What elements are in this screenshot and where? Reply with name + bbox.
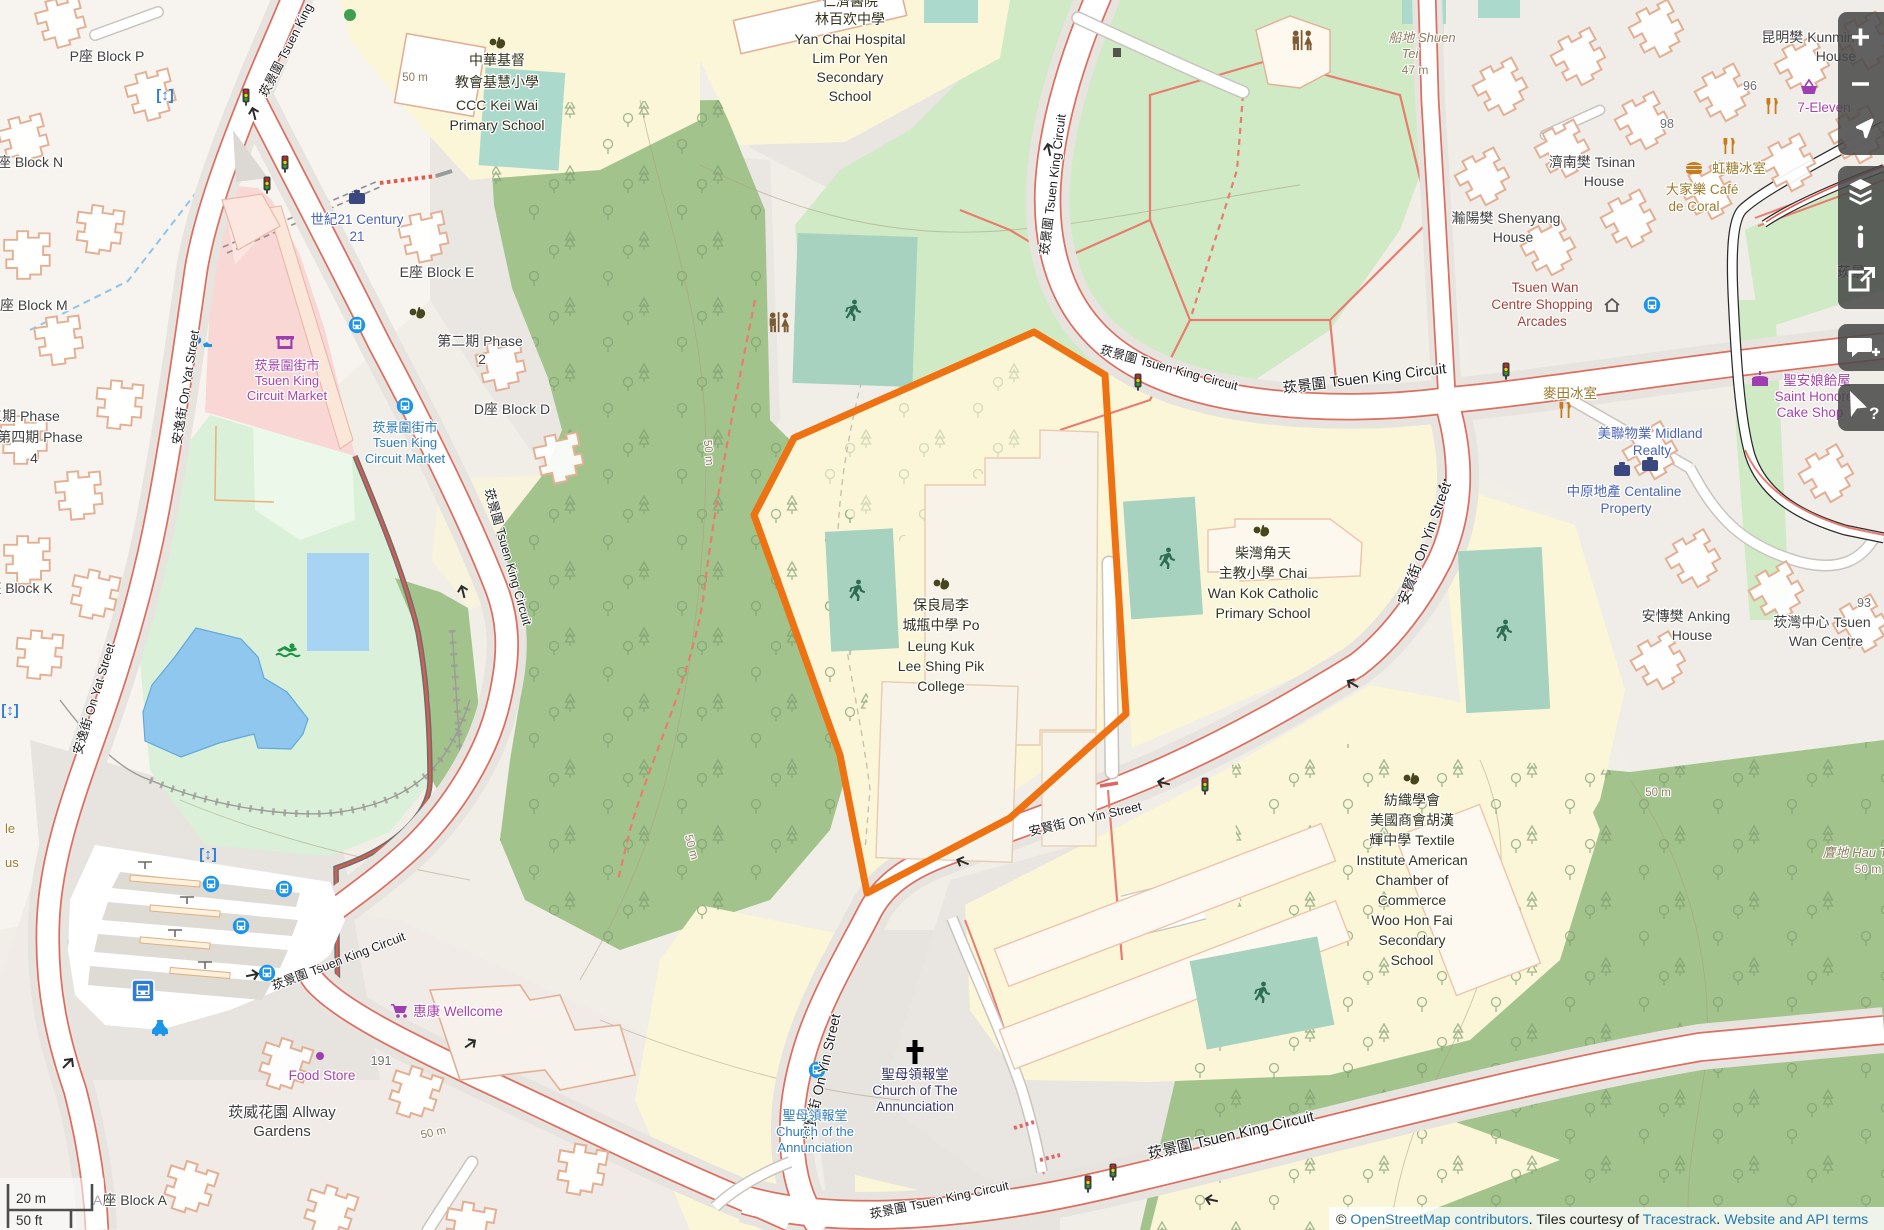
svg-text:美聯物業 Midland: 美聯物業 Midland (1597, 426, 1702, 441)
svg-text:城甁中學 Po: 城甁中學 Po (902, 617, 979, 633)
svg-text:Arcades: Arcades (1517, 314, 1567, 329)
svg-text:輝中學 Textile: 輝中學 Textile (1369, 832, 1455, 848)
svg-text:21: 21 (349, 229, 364, 244)
svg-text:2: 2 (478, 351, 486, 367)
svg-text:50 m: 50 m (402, 72, 428, 84)
svg-text:美國商會胡漢: 美國商會胡漢 (1370, 812, 1454, 828)
svg-text:濟南樊 Tsinan: 濟南樊 Tsinan (1549, 154, 1635, 170)
svg-text:聖母領報堂: 聖母領報堂 (782, 1108, 847, 1123)
svg-text:Primary School: Primary School (1216, 605, 1311, 621)
svg-text:20 m: 20 m (16, 1191, 46, 1206)
svg-text:Tei: Tei (1402, 46, 1420, 61)
svg-text:主教小學 Chai: 主教小學 Chai (1219, 565, 1308, 581)
svg-text:Leung Kuk: Leung Kuk (908, 638, 976, 654)
svg-text:Woo Hon Fai: Woo Hon Fai (1371, 912, 1452, 928)
svg-text:School: School (829, 88, 872, 104)
svg-text:M座 Block M: M座 Block M (0, 297, 68, 313)
svg-text:聖母領報堂: 聖母領報堂 (881, 1066, 949, 1082)
svg-text:Tsuen Wan: Tsuen Wan (1511, 280, 1578, 295)
svg-text:柴灣角天: 柴灣角天 (1235, 545, 1291, 561)
svg-text:Lim Por Yen: Lim Por Yen (812, 50, 888, 66)
svg-text:三期 Phase: 三期 Phase (0, 408, 60, 424)
svg-text:世紀21 Century: 世紀21 Century (310, 212, 403, 227)
svg-text:98: 98 (1660, 117, 1674, 131)
svg-text:船地 Shuen: 船地 Shuen (1388, 30, 1455, 45)
svg-text:Gardens: Gardens (253, 1123, 311, 1140)
svg-text:Lee Shing Pik: Lee Shing Pik (898, 658, 985, 674)
svg-text:96: 96 (1743, 79, 1757, 93)
svg-text:House: House (1493, 229, 1534, 245)
svg-text:Annunciation: Annunciation (876, 1099, 954, 1114)
svg-text:第二期 Phase: 第二期 Phase (437, 333, 523, 349)
svg-text:Cake Shop: Cake Shop (1777, 405, 1844, 420)
svg-text:保良局李: 保良局李 (913, 597, 969, 613)
svg-text:大家樂 Café: 大家樂 Café (1666, 181, 1739, 197)
svg-text:Secondary: Secondary (817, 69, 884, 85)
svg-text:紡織學會: 紡織學會 (1384, 792, 1440, 808)
svg-text:Realty: Realty (1633, 443, 1672, 458)
svg-text:Commerce: Commerce (1378, 892, 1447, 908)
svg-text:座 Block K: 座 Block K (0, 580, 53, 596)
svg-text:聖安娘餄屋: 聖安娘餄屋 (1783, 373, 1851, 388)
svg-text:le: le (5, 821, 15, 836)
svg-text:191: 191 (371, 1054, 392, 1068)
svg-text:50 m: 50 m (1645, 787, 1671, 799)
svg-text:莰景圍街市: 莰景圍街市 (372, 420, 437, 435)
svg-text:House: House (1672, 627, 1713, 643)
svg-text:Yan Chai Hospital: Yan Chai Hospital (794, 31, 905, 47)
svg-text:中華基督: 中華基督 (469, 52, 525, 68)
svg-text:50 m: 50 m (701, 439, 715, 466)
svg-text:Circuit Market: Circuit Market (365, 451, 446, 466)
svg-text:莰威花園 Allway: 莰威花園 Allway (228, 1104, 336, 1121)
svg-text:D座 Block D: D座 Block D (474, 401, 550, 417)
svg-text:林百欢中學: 林百欢中學 (815, 11, 885, 27)
svg-text:50 ft: 50 ft (16, 1213, 43, 1228)
svg-text:Tsuen King: Tsuen King (373, 435, 437, 450)
svg-text:© OpenStreetMap contributors.: © OpenStreetMap contributors. Tiles cour… (1336, 1212, 1868, 1228)
svg-text:教會基慧小學: 教會基慧小學 (455, 74, 539, 90)
svg-text:麥田冰室: 麥田冰室 (1543, 385, 1597, 401)
svg-text:College: College (917, 678, 965, 694)
svg-text:惠康 Wellcome: 惠康 Wellcome (413, 1003, 503, 1019)
svg-text:莰灣中心 Tsuen: 莰灣中心 Tsuen (1773, 614, 1870, 630)
svg-text:House: House (1584, 173, 1625, 189)
svg-text:Church of The: Church of The (872, 1083, 957, 1098)
svg-text:4: 4 (30, 450, 38, 466)
svg-text:47 m: 47 m (1402, 63, 1429, 77)
svg-text:50 m: 50 m (1855, 862, 1882, 876)
svg-text:?: ? (1869, 404, 1879, 423)
svg-text:Food Store: Food Store (289, 1068, 356, 1083)
svg-text:E座 Block E: E座 Block E (400, 264, 475, 280)
svg-text:de Coral: de Coral (1668, 199, 1719, 214)
svg-text:仁濟醫院: 仁濟醫院 (822, 0, 878, 9)
svg-text:Circuit Market: Circuit Market (247, 388, 328, 403)
svg-text:Church of the: Church of the (776, 1124, 854, 1139)
svg-text:School: School (1391, 952, 1434, 968)
svg-text:[↕]: [↕] (156, 87, 174, 104)
svg-text:安慱樊 Anking: 安慱樊 Anking (1642, 608, 1731, 624)
svg-text:虹糖冰室: 虹糖冰室 (1712, 160, 1766, 176)
svg-text:Wan Centre: Wan Centre (1789, 633, 1863, 649)
svg-text:[↕]: [↕] (1, 702, 19, 719)
svg-text:93: 93 (1857, 596, 1871, 610)
svg-text:麆地 Hau Te: 麆地 Hau Te (1822, 845, 1884, 860)
svg-text:us: us (5, 855, 19, 870)
svg-text:Property: Property (1600, 501, 1651, 516)
svg-text:座 Block N: 座 Block N (0, 154, 63, 170)
svg-text:瀭陽樊 Shenyang: 瀭陽樊 Shenyang (1452, 210, 1561, 226)
svg-text:Centre Shopping: Centre Shopping (1491, 297, 1592, 312)
svg-text:P座 Block P: P座 Block P (70, 48, 145, 64)
svg-text:中原地產 Centaline: 中原地產 Centaline (1567, 483, 1682, 499)
svg-text:Primary School: Primary School (450, 117, 545, 133)
svg-text:[↕]: [↕] (199, 846, 217, 863)
svg-text:第四期 Phase: 第四期 Phase (0, 429, 83, 445)
svg-text:Secondary: Secondary (1379, 932, 1446, 948)
svg-text:Chamber of: Chamber of (1375, 872, 1448, 888)
svg-text:A座 Block A: A座 Block A (93, 1192, 168, 1208)
svg-text:Annunciation: Annunciation (777, 1140, 852, 1155)
svg-text:Wan Kok Catholic: Wan Kok Catholic (1208, 585, 1319, 601)
svg-text:CCC Kei Wai: CCC Kei Wai (456, 97, 538, 113)
svg-text:Institute American: Institute American (1356, 852, 1467, 868)
svg-text:莰景圍街市: 莰景圍街市 (254, 358, 319, 373)
svg-text:Tsuen King: Tsuen King (255, 373, 319, 388)
